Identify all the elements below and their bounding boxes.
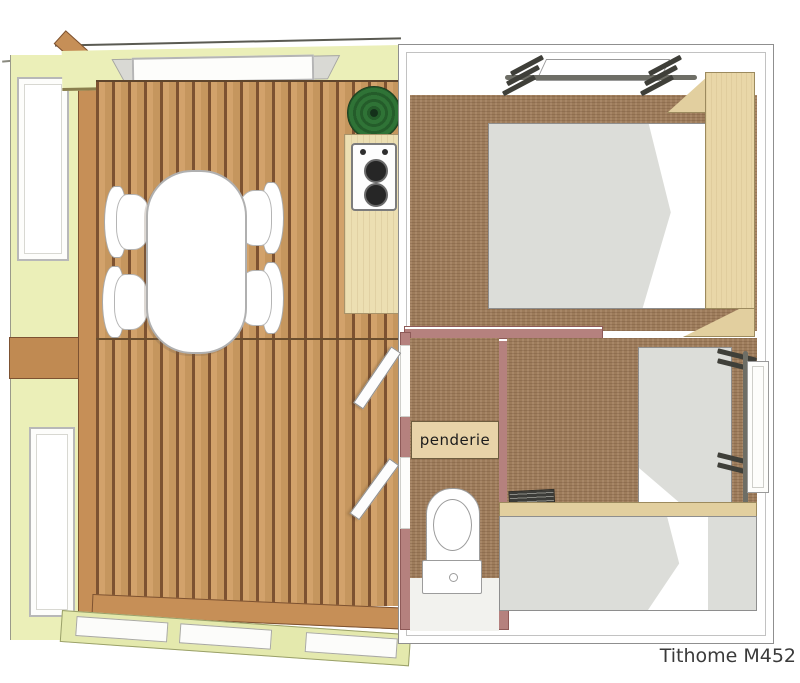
window-pane [36,434,68,610]
kitchen-counter [344,134,403,314]
left-wall-upper-window [17,77,69,261]
stove-burner [364,183,388,207]
window-pane [752,366,764,488]
green-sink-basin [347,86,401,140]
bottom-wall-panel [75,616,168,642]
toilet-tank [422,560,482,594]
cabin-unit: penderie [398,44,774,644]
bed-blanket-fold [648,517,708,610]
single-bed-vertical [638,347,732,505]
dining-chair [102,266,148,336]
window-pane [24,84,62,254]
penderie-label: penderie [420,431,491,449]
bed-blanket-fold [639,468,681,504]
bottom-wall-panel [179,623,272,649]
left-wall-lower-window [29,427,75,617]
toilet-flush-button [449,573,458,582]
stove-burner [364,159,388,183]
tall-wardrobe [705,72,755,309]
basin-drain [370,109,378,117]
single-bed-horizontal [499,516,757,611]
chair-seat [114,274,150,330]
toilet-seat [433,499,472,551]
left-wall-wood-beam [9,337,85,379]
stove-knob [382,149,388,155]
bedroom2-window [747,361,769,493]
bed-blanket-fold [629,124,705,308]
double-bed [488,123,706,309]
floorplan-canvas: penderie Tithome M452 [0,0,800,683]
bottom-wall-panel [305,632,398,658]
penderie-wardrobe: penderie [411,421,499,459]
dining-chair [104,186,150,256]
stove-knob [360,149,366,155]
deck-floor-seam [96,338,400,340]
deck-left-wall [10,55,81,640]
two-burner-stove [351,143,397,211]
dining-table [146,170,247,354]
plan-caption: Tithome M452 [640,645,796,673]
